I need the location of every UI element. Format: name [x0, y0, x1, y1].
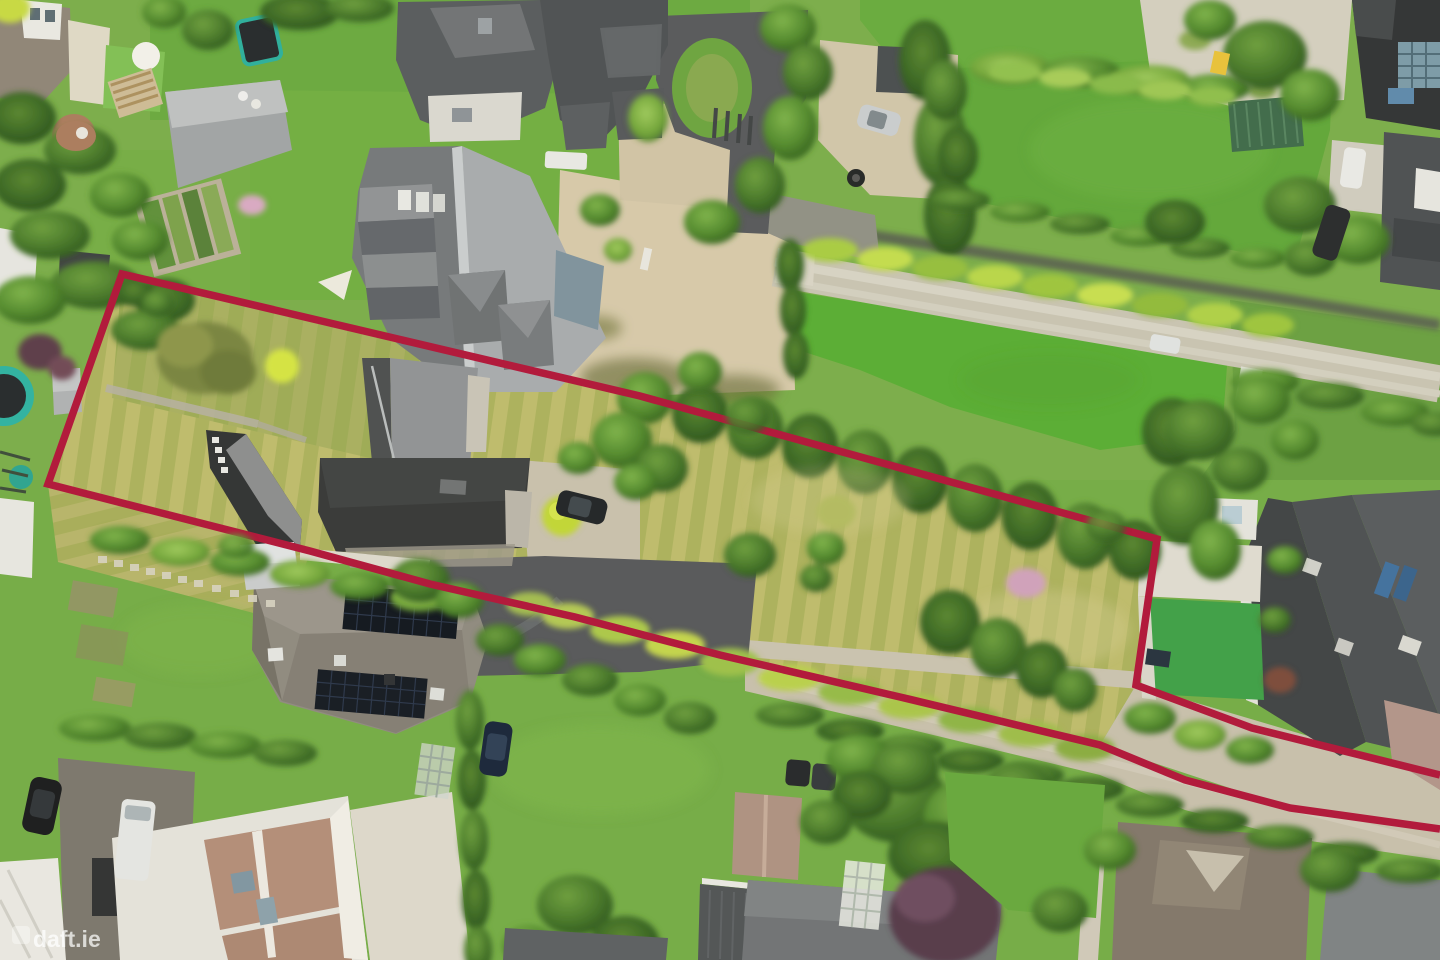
svg-text:daft.ie: daft.ie	[33, 926, 101, 952]
